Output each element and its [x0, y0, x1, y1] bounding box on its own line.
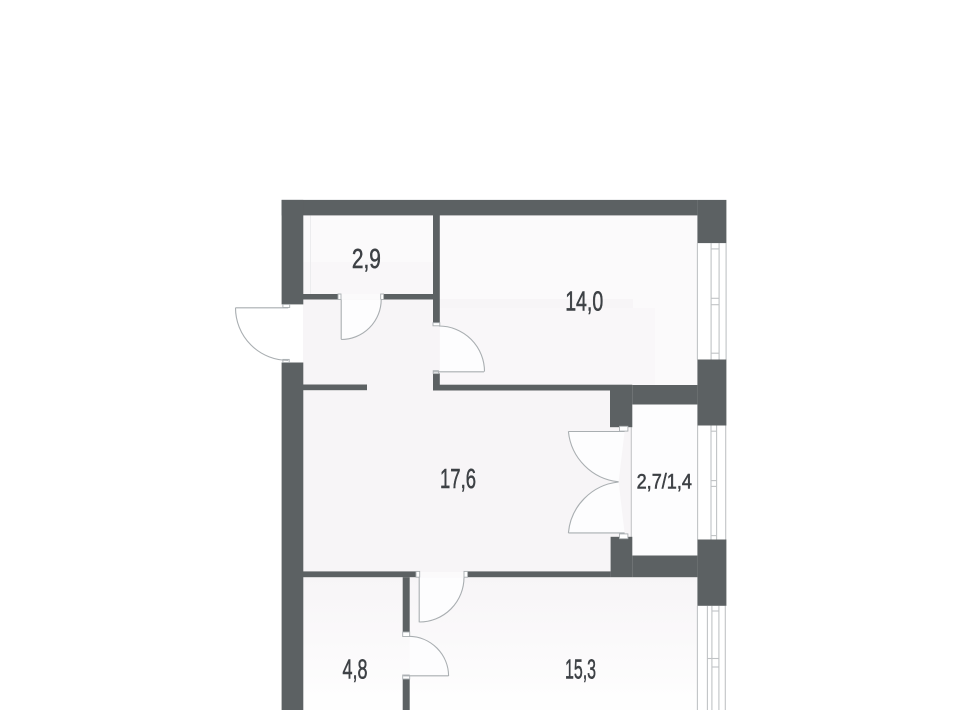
svg-text:15,3: 15,3 — [565, 653, 596, 684]
svg-text:4,8: 4,8 — [343, 653, 368, 684]
svg-text:17,6: 17,6 — [440, 463, 476, 494]
svg-text:2,7/1,4: 2,7/1,4 — [637, 471, 693, 494]
svg-text:2,9: 2,9 — [352, 243, 381, 274]
svg-text:14,0: 14,0 — [565, 285, 603, 316]
